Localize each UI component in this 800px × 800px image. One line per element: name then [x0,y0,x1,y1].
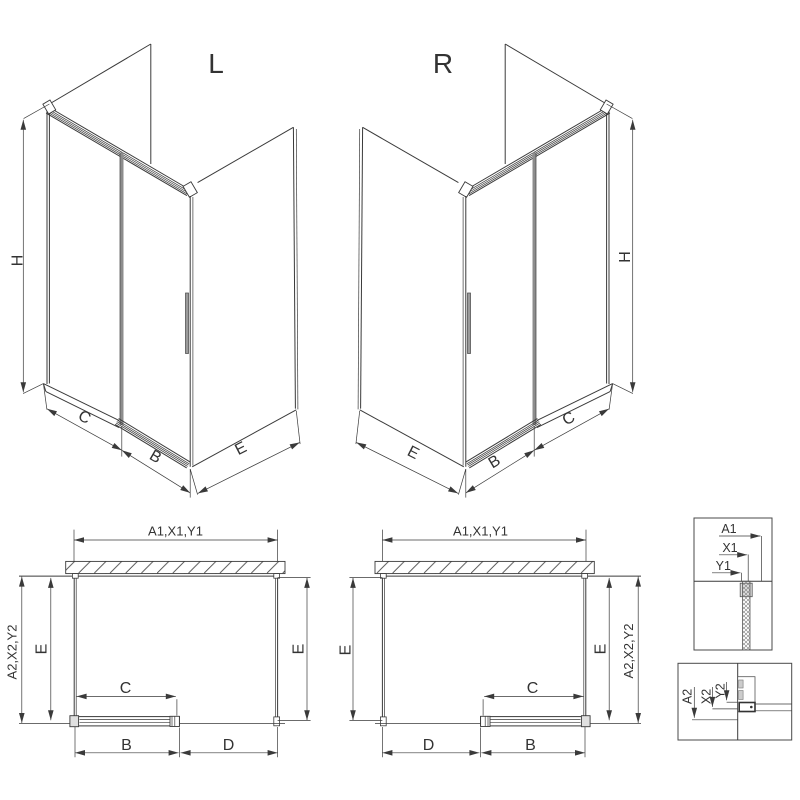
plan-left-dim-b: B [121,737,132,754]
detail-label-x1: X1 [722,541,737,555]
iso-right-variant [356,44,633,498]
detail-bottom-border [678,663,792,740]
wall-hatch-left-plan [66,561,285,573]
iso-left-variant-label: L [208,48,224,79]
iso-left-dim-h: H [10,255,27,267]
iso-right-variant-label: R [433,48,453,79]
plan-left-dim-c: C [120,680,132,697]
iso-left-dim-b: B [146,447,164,467]
bottom-rail-channel [739,703,755,712]
plan-right-dim-e-left: E [338,645,355,656]
iso-right-dim-e: E [404,443,421,463]
iso-left-dim-e: E [232,439,249,459]
detail-box-bottom-rail: A2 X2 Y2 [678,663,792,740]
iso-left-variant [23,44,300,498]
plan-left-dim-e-right: E [291,644,308,655]
detail-label-y2: Y2 [714,683,728,698]
plan-right-dim-outer: A2,X2,Y2 [621,624,636,679]
glass-cross-section [743,581,750,650]
profile-detail-2 [739,691,744,700]
drawing-page: A1 X1 Y1 A2 X2 Y2 L H C B E R H E B C A1… [0,0,800,800]
plan-right-dim-width: A1,X1,Y1 [453,524,508,539]
profile-detail-1 [739,680,744,688]
iso-right-dim-h: H [617,251,634,263]
plan-left-dim-width: A1,X1,Y1 [148,524,203,539]
plan-right-dim-e-right: E [593,644,610,655]
detail-label-a1: A1 [721,522,736,536]
wall-hatch-right-plan [375,561,594,573]
iso-left-dim-c: C [75,407,93,427]
detail-box-wall-profile: A1 X1 Y1 [694,518,772,650]
iso-right-dim-b: B [486,452,504,472]
plan-right-dim-d: D [423,737,435,754]
plan-right-dim-b: B [525,737,536,754]
plan-left-dim-e-left: E [34,644,51,655]
rail-roller-dot [750,706,753,709]
detail-label-a2: A2 [681,689,695,704]
detail-label-y1: Y1 [716,559,731,573]
plan-right-dim-c: C [527,680,539,697]
iso-right-dim-c: C [560,409,578,429]
plan-left-dim-d: D [223,737,235,754]
plan-left-dim-outer: A2,X2,Y2 [5,625,20,680]
technical-drawing-canvas: A1 X1 Y1 A2 X2 Y2 L H C B E R H E B C A1… [0,0,800,800]
detail-label-x2: X2 [700,689,714,704]
detail-top-border [694,518,772,650]
